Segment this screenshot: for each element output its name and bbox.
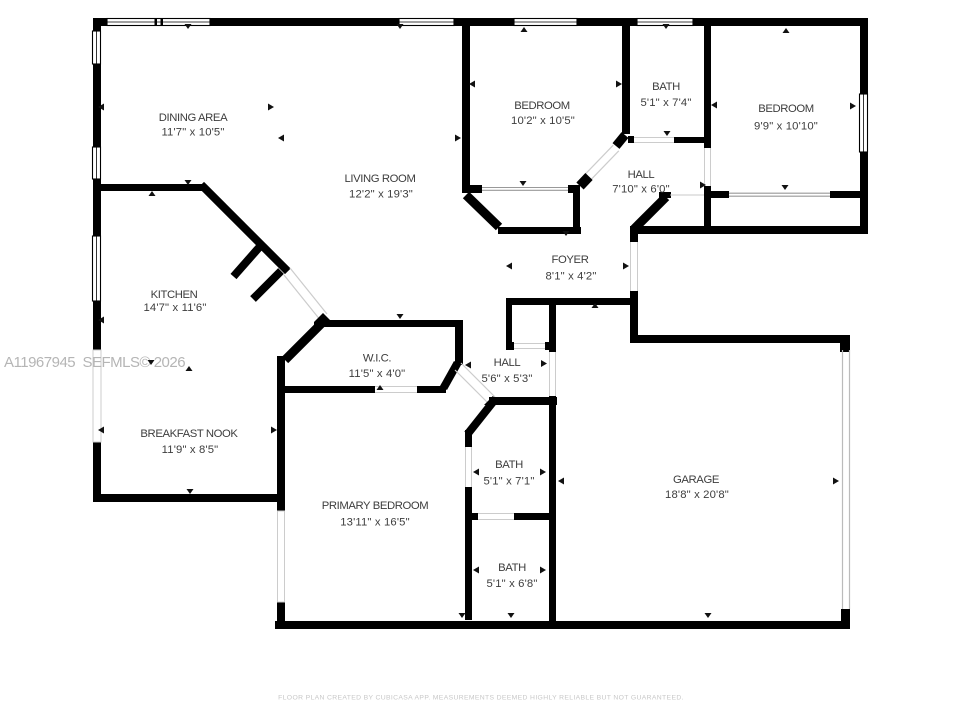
svg-text:BATH: BATH — [498, 562, 526, 574]
svg-text:LIVING ROOM: LIVING ROOM — [345, 173, 416, 185]
svg-text:13'11" x 16'5": 13'11" x 16'5" — [340, 517, 410, 529]
svg-text:8'1" x 4'2": 8'1" x 4'2" — [545, 271, 596, 283]
svg-text:5'1" x 6'8": 5'1" x 6'8" — [486, 578, 537, 590]
svg-text:5'6" x 5'3": 5'6" x 5'3" — [481, 373, 532, 385]
svg-text:PRIMARY BEDROOM: PRIMARY BEDROOM — [322, 500, 429, 512]
svg-text:11'9" x 8'5": 11'9" x 8'5" — [162, 444, 219, 456]
svg-text:5'1" x 7'4": 5'1" x 7'4" — [640, 97, 691, 109]
svg-text:A11967945 SEFMLS© 2026: A11967945 SEFMLS© 2026 — [4, 354, 185, 371]
svg-text:BATH: BATH — [652, 81, 680, 93]
svg-text:9'9" x 10'10": 9'9" x 10'10" — [754, 121, 818, 133]
svg-text:FLOOR PLAN CREATED BY CUBICASA: FLOOR PLAN CREATED BY CUBICASA APP. MEAS… — [278, 695, 684, 702]
svg-text:BEDROOM: BEDROOM — [514, 100, 570, 112]
svg-text:HALL: HALL — [628, 169, 655, 181]
svg-text:BATH: BATH — [495, 459, 523, 471]
svg-text:BREAKFAST NOOK: BREAKFAST NOOK — [140, 428, 238, 440]
svg-text:BEDROOM: BEDROOM — [758, 103, 814, 115]
svg-text:7'10" x 6'0": 7'10" x 6'0" — [612, 184, 669, 196]
svg-text:11'7" x 10'5": 11'7" x 10'5" — [161, 127, 224, 139]
svg-text:FOYER: FOYER — [552, 254, 589, 266]
svg-text:18'8" x 20'8": 18'8" x 20'8" — [665, 489, 729, 501]
svg-text:DINING AREA: DINING AREA — [159, 112, 228, 124]
svg-text:11'5" x 4'0": 11'5" x 4'0" — [349, 368, 406, 380]
svg-text:12'2" x 19'3": 12'2" x 19'3" — [349, 189, 413, 201]
svg-text:5'1" x 7'1": 5'1" x 7'1" — [483, 476, 534, 488]
svg-text:KITCHEN: KITCHEN — [151, 289, 198, 301]
svg-text:14'7" x 11'6": 14'7" x 11'6" — [143, 302, 206, 314]
svg-text:10'2" x 10'5": 10'2" x 10'5" — [511, 115, 575, 127]
svg-text:HALL: HALL — [494, 357, 521, 369]
svg-text:W.I.C.: W.I.C. — [363, 353, 392, 365]
svg-text:GARAGE: GARAGE — [673, 474, 720, 486]
